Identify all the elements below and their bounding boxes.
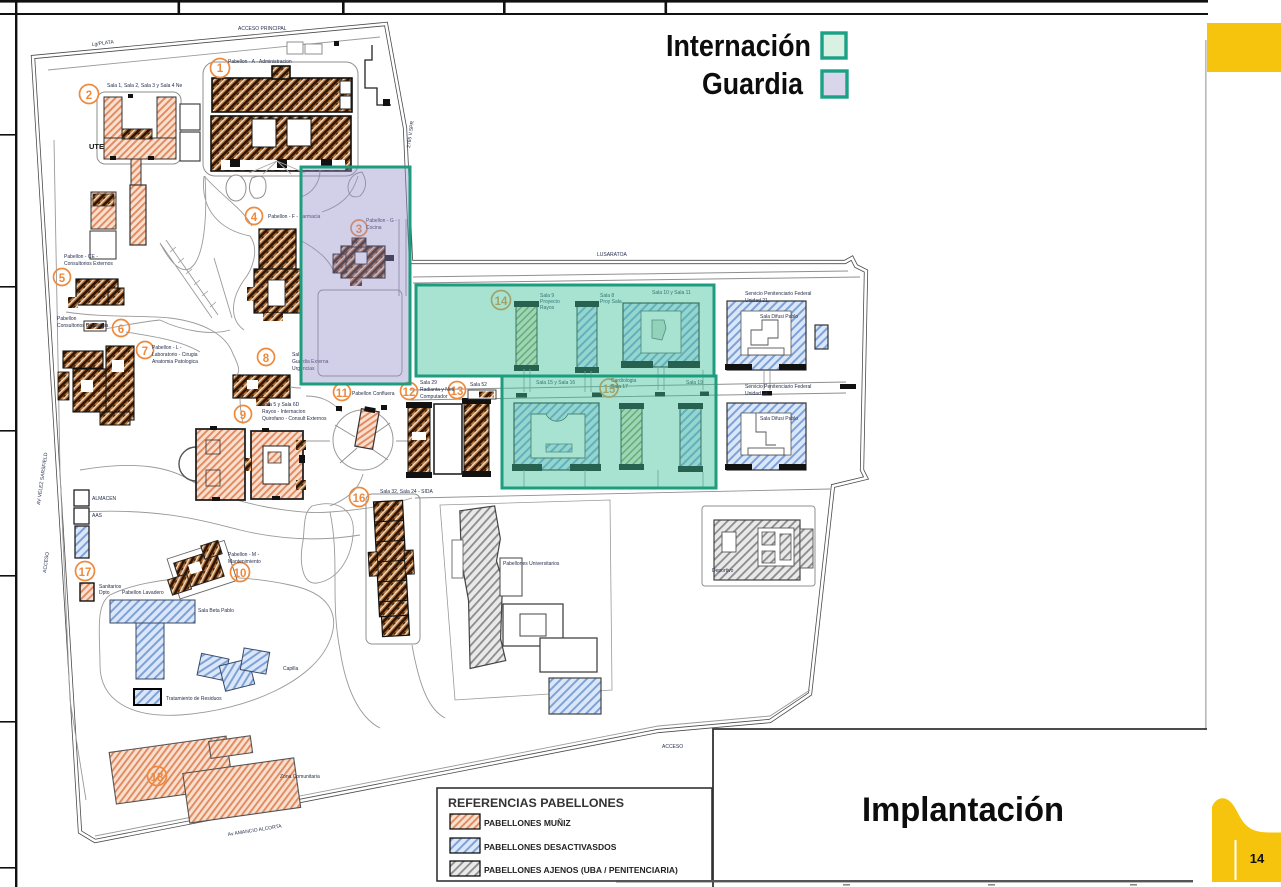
- svg-text:17: 17: [79, 567, 92, 579]
- svg-text:Implantación: Implantación: [862, 791, 1064, 829]
- svg-text:Mantenimiento: Mantenimiento: [228, 559, 261, 565]
- svg-text:Computador: Computador: [420, 394, 448, 400]
- svg-text:12: 12: [403, 387, 416, 399]
- svg-text:PABELLONES AJENOS (UBA / PENIT: PABELLONES AJENOS (UBA / PENITENCIARIA): [484, 865, 678, 875]
- svg-text:10: 10: [234, 568, 247, 580]
- svg-text:LUSARATOA: LUSARATOA: [597, 252, 627, 258]
- svg-text:Deportivo: Deportivo: [712, 568, 734, 574]
- svg-text:Tratamiento de Residuos: Tratamiento de Residuos: [166, 696, 222, 702]
- svg-text:Pabellon Lavadero: Pabellon Lavadero: [122, 590, 164, 596]
- svg-text:11: 11: [336, 388, 349, 400]
- svg-text:1: 1: [217, 63, 224, 75]
- svg-text:ACCESO PRINCIPAL: ACCESO PRINCIPAL: [238, 26, 287, 32]
- svg-text:Sala Difusi Pablo: Sala Difusi Pablo: [760, 416, 798, 422]
- svg-text:Pabellon - A - Administracion: Pabellon - A - Administracion: [228, 59, 292, 65]
- svg-text:16: 16: [353, 493, 366, 505]
- svg-text:Quirofano - Consult Externos: Quirofano - Consult Externos: [262, 416, 327, 422]
- svg-text:ACCESO: ACCESO: [662, 744, 683, 750]
- svg-text:2: 2: [86, 90, 92, 102]
- svg-text:Sala 5 y Sala 6D: Sala 5 y Sala 6D: [262, 402, 300, 408]
- svg-text:Sala Beta Pablo: Sala Beta Pablo: [198, 608, 234, 614]
- svg-text:PABELLONES MUÑIZ: PABELLONES MUÑIZ: [484, 818, 571, 828]
- svg-text:Pabellon - CE -: Pabellon - CE -: [64, 254, 98, 260]
- svg-text:Pabellon - L -: Pabellon - L -: [152, 345, 182, 351]
- svg-text:Laboratorio - Cirugia: Laboratorio - Cirugia: [152, 352, 198, 358]
- svg-text:Anatomia Patologica: Anatomia Patologica: [152, 359, 198, 365]
- svg-text:Guardia: Guardia: [702, 66, 804, 101]
- svg-text:9: 9: [240, 410, 246, 422]
- svg-text:8: 8: [263, 353, 270, 365]
- svg-text:Zona Comunitaria: Zona Comunitaria: [280, 774, 320, 780]
- svg-text:Sala 1, Sala 2, Sala 3 y Sala: Sala 1, Sala 2, Sala 3 y Sala 4 Ne: [107, 83, 183, 89]
- svg-text:Sala Difusi Pablo: Sala Difusi Pablo: [760, 314, 798, 320]
- svg-text:Dpto: Dpto: [99, 590, 110, 596]
- svg-text:Servicio Penitenciario Federal: Servicio Penitenciario Federal: [745, 384, 811, 390]
- svg-text:Sala 32, Sala 24 - SIDA: Sala 32, Sala 24 - SIDA: [380, 489, 433, 495]
- svg-text:ALMACEN: ALMACEN: [92, 496, 117, 502]
- svg-text:Unidad 24: Unidad 24: [745, 391, 768, 397]
- svg-text:Pabellon - M -: Pabellon - M -: [228, 552, 259, 558]
- svg-text:Rayos - Internacion: Rayos - Internacion: [262, 409, 306, 415]
- svg-text:Servicio Penitenciario Federal: Servicio Penitenciario Federal: [745, 291, 811, 297]
- svg-text:6: 6: [118, 324, 124, 336]
- svg-text:Capilla: Capilla: [283, 666, 299, 672]
- svg-text:AAS: AAS: [92, 513, 103, 519]
- svg-text:Pabellon: Pabellon: [57, 316, 77, 322]
- svg-text:PABELLONES DESACTIVASDOS: PABELLONES DESACTIVASDOS: [484, 842, 617, 852]
- svg-text:Sala 29: Sala 29: [420, 380, 437, 386]
- svg-text:REFERENCIAS PABELLONES: REFERENCIAS PABELLONES: [448, 798, 624, 810]
- svg-text:Sala 52: Sala 52: [470, 382, 487, 388]
- svg-text:18: 18: [151, 772, 164, 784]
- svg-text:Radianta y Neu: Radianta y Neu: [420, 387, 455, 393]
- svg-text:Consultorios de Alergia: Consultorios de Alergia: [57, 323, 109, 329]
- svg-text:7: 7: [142, 346, 148, 358]
- svg-text:Pabellon Confluera: Pabellon Confluera: [352, 391, 395, 397]
- svg-text:Pabellones Universitarios: Pabellones Universitarios: [503, 561, 560, 567]
- svg-text:Unidad 21: Unidad 21: [745, 298, 768, 304]
- svg-text:5: 5: [59, 273, 66, 285]
- svg-text:14: 14: [1250, 851, 1265, 866]
- svg-text:Internación: Internación: [666, 28, 811, 63]
- svg-text:Consultorios Externos: Consultorios Externos: [64, 261, 113, 267]
- svg-text:4: 4: [251, 212, 258, 224]
- svg-text:UTE: UTE: [89, 142, 104, 151]
